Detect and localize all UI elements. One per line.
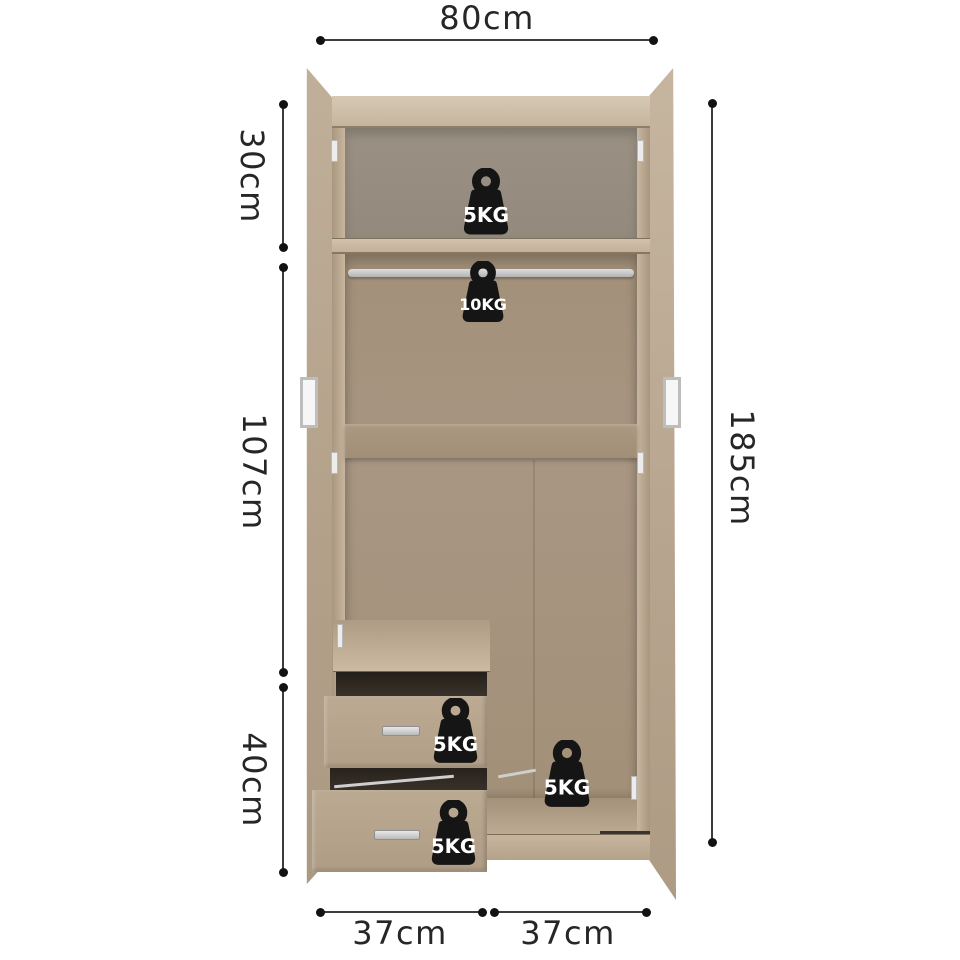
hinge-top-left <box>331 140 338 162</box>
inner-side-right <box>637 128 650 840</box>
left-door-handle <box>300 377 318 428</box>
weight-ring <box>474 264 492 282</box>
dim-label-bottom-right-width: 37cm <box>520 917 615 949</box>
weight-ring <box>557 743 576 762</box>
weight-icon-lower-drawer: 5KG <box>426 800 481 866</box>
dim-line-middle-section <box>282 266 284 674</box>
dim-line-lower-section <box>282 686 284 874</box>
upper-drawer-handle <box>382 726 420 736</box>
back-panel-seam <box>533 460 535 800</box>
weight-label: 5KG <box>463 203 509 227</box>
dim-line-upper-section <box>282 103 284 249</box>
wardrobe-dimension-diagram: 5KG 10KG 5KG 5KG 5KG 80cm 30cm 107cm <box>0 0 960 960</box>
upper-drawer-gap <box>336 672 487 696</box>
dim-label-top-width: 80cm <box>439 2 534 34</box>
dim-label-total-height: 185cm <box>726 409 758 526</box>
dim-line-bottom-left-width <box>319 911 484 913</box>
dim-label-lower-section: 40cm <box>238 732 270 827</box>
hinge-mid-left <box>331 452 338 474</box>
dim-label-middle-section: 107cm <box>238 413 270 530</box>
dim-line-top-width <box>319 39 655 41</box>
back-support-beam <box>345 424 637 458</box>
weight-label: 10KG <box>459 295 507 314</box>
lower-drawer-handle <box>374 830 420 840</box>
weight-ring <box>446 701 465 720</box>
weight-label: 5KG <box>433 733 478 756</box>
hinge-bottom-left <box>337 624 343 648</box>
weight-icon-top-shelf: 5KG <box>458 168 514 236</box>
hinge-bottom-right <box>631 776 637 800</box>
weight-label: 5KG <box>544 775 591 799</box>
bottom-front-panel <box>487 834 650 860</box>
weight-icon-base-floor: 5KG <box>538 740 596 808</box>
drawer-unit-top <box>333 620 490 672</box>
wardrobe-illustration: 5KG 10KG 5KG 5KG 5KG <box>0 0 960 960</box>
weight-label: 5KG <box>431 835 476 858</box>
top-shelf <box>332 238 650 254</box>
hinge-mid-right <box>637 452 644 474</box>
weight-icon-hanging-rail: 10KG <box>452 261 514 323</box>
dim-line-bottom-right-width <box>493 911 648 913</box>
hinge-top-right <box>637 140 644 162</box>
right-door <box>648 68 676 900</box>
weight-icon-upper-drawer: 5KG <box>428 698 483 764</box>
dim-label-bottom-left-width: 37cm <box>352 917 447 949</box>
weight-ring <box>444 803 463 822</box>
dim-label-upper-section: 30cm <box>236 128 268 223</box>
weight-ring <box>476 172 495 191</box>
carcass-top-panel <box>332 96 650 128</box>
dim-line-total-height <box>711 102 713 844</box>
right-door-handle <box>663 377 681 428</box>
